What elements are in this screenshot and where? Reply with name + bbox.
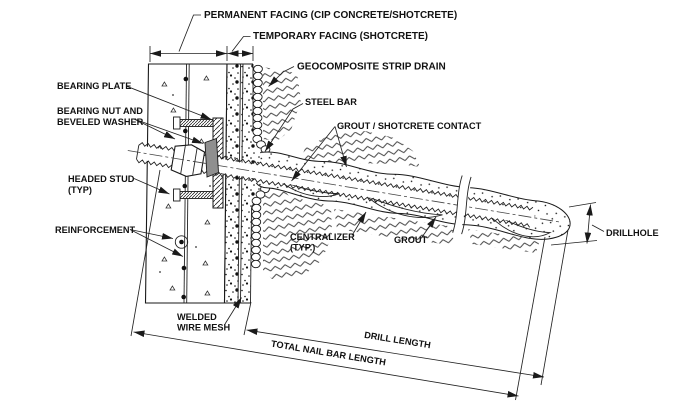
- aggregate-speck: [159, 271, 161, 273]
- drain-coil-loop: [252, 246, 261, 253]
- label-headed-stud-1: HEADED STUD: [68, 174, 135, 184]
- aggregate-speck: [209, 185, 211, 187]
- aggregate-speck: [195, 246, 197, 248]
- label-steel-bar: STEEL BAR: [305, 97, 357, 107]
- label-headed-stud-2: (TYP): [68, 185, 92, 195]
- label-centralizer-2: (TYP.): [290, 243, 315, 253]
- drain-coil-loop: [253, 107, 262, 114]
- label-centralizer-1: CENTRALIZER: [290, 232, 355, 242]
- label-welded-wire-mesh-2: WIRE MESH: [177, 323, 230, 333]
- drain-coil-loop: [253, 86, 262, 93]
- drain-coil-loop: [252, 232, 261, 239]
- drain-coil-loop: [252, 225, 261, 232]
- drain-coil-loop: [253, 79, 262, 86]
- label-bearing-plate: BEARING PLATE: [57, 81, 131, 91]
- label-reinforcement: REINFORCEMENT: [55, 225, 136, 235]
- drain-coil-loop: [253, 93, 262, 100]
- ext-line-drillhole-top: [569, 203, 596, 208]
- soil-patch-upper: [263, 67, 301, 141]
- label-bearing-nut-1: BEARING NUT AND: [57, 106, 143, 116]
- drain-coil-loop: [252, 253, 261, 260]
- drawing-canvas: PERMANENT FACING (CIP CONCRETE/SHOTCRETE…: [0, 0, 700, 416]
- dim-drillhole: [587, 205, 591, 244]
- drain-coil-loop: [252, 239, 261, 246]
- wall-section: [146, 64, 273, 303]
- drain-coil-loop: [254, 72, 263, 79]
- aggregate-speck: [172, 94, 174, 96]
- rebar-dot: [183, 129, 188, 134]
- drain-coil-loop: [252, 218, 261, 225]
- drain-coil-loop: [254, 65, 263, 72]
- label-permanent-facing: PERMANENT FACING (CIP CONCRETE/SHOTCRETE…: [204, 10, 457, 21]
- label-temporary-facing: TEMPORARY FACING (SHOTCRETE): [253, 31, 428, 42]
- label-grout: GROUT: [394, 235, 428, 245]
- leader-drillhole: [592, 225, 604, 232]
- rebar-dot: [181, 295, 186, 300]
- ext-line-total-right: [516, 237, 546, 400]
- drain-coil-loop: [253, 128, 262, 135]
- drain-coil-loop: [251, 260, 260, 267]
- dim-text-drill-length: DRILL LENGTH: [363, 330, 431, 350]
- drain-coil-loop: [253, 121, 262, 128]
- drain-coil-loop: [252, 197, 261, 204]
- drain-coil-loop: [252, 211, 261, 218]
- leader-temporary-facing: [232, 37, 251, 52]
- label-drillhole: DRILLHOLE: [606, 228, 659, 238]
- soil-nail-detail-drawing: PERMANENT FACING (CIP CONCRETE/SHOTCRETE…: [0, 0, 700, 416]
- drain-coil-loop: [252, 204, 261, 211]
- label-bearing-nut-2: BEVELED WASHER: [57, 117, 144, 127]
- drain-coil-loop: [253, 114, 262, 121]
- rebar-dot: [179, 240, 184, 245]
- ext-line-drill-right: [541, 230, 568, 385]
- label-geocomposite: GEOCOMPOSITE STRIP DRAIN: [297, 62, 446, 73]
- label-grout-shotcrete-contact: GROUT / SHOTCRETE CONTACT: [337, 121, 482, 131]
- leader-permanent-facing: [179, 15, 201, 52]
- rebar-dot: [182, 266, 187, 271]
- beveled-washer: [205, 139, 219, 178]
- label-welded-wire-mesh-1: WELDED: [177, 312, 217, 322]
- rebar-dot: [184, 77, 189, 82]
- ext-line-drillhole-bottom: [551, 241, 597, 246]
- drain-coil-loop: [253, 100, 262, 107]
- rebar-dot: [182, 184, 187, 189]
